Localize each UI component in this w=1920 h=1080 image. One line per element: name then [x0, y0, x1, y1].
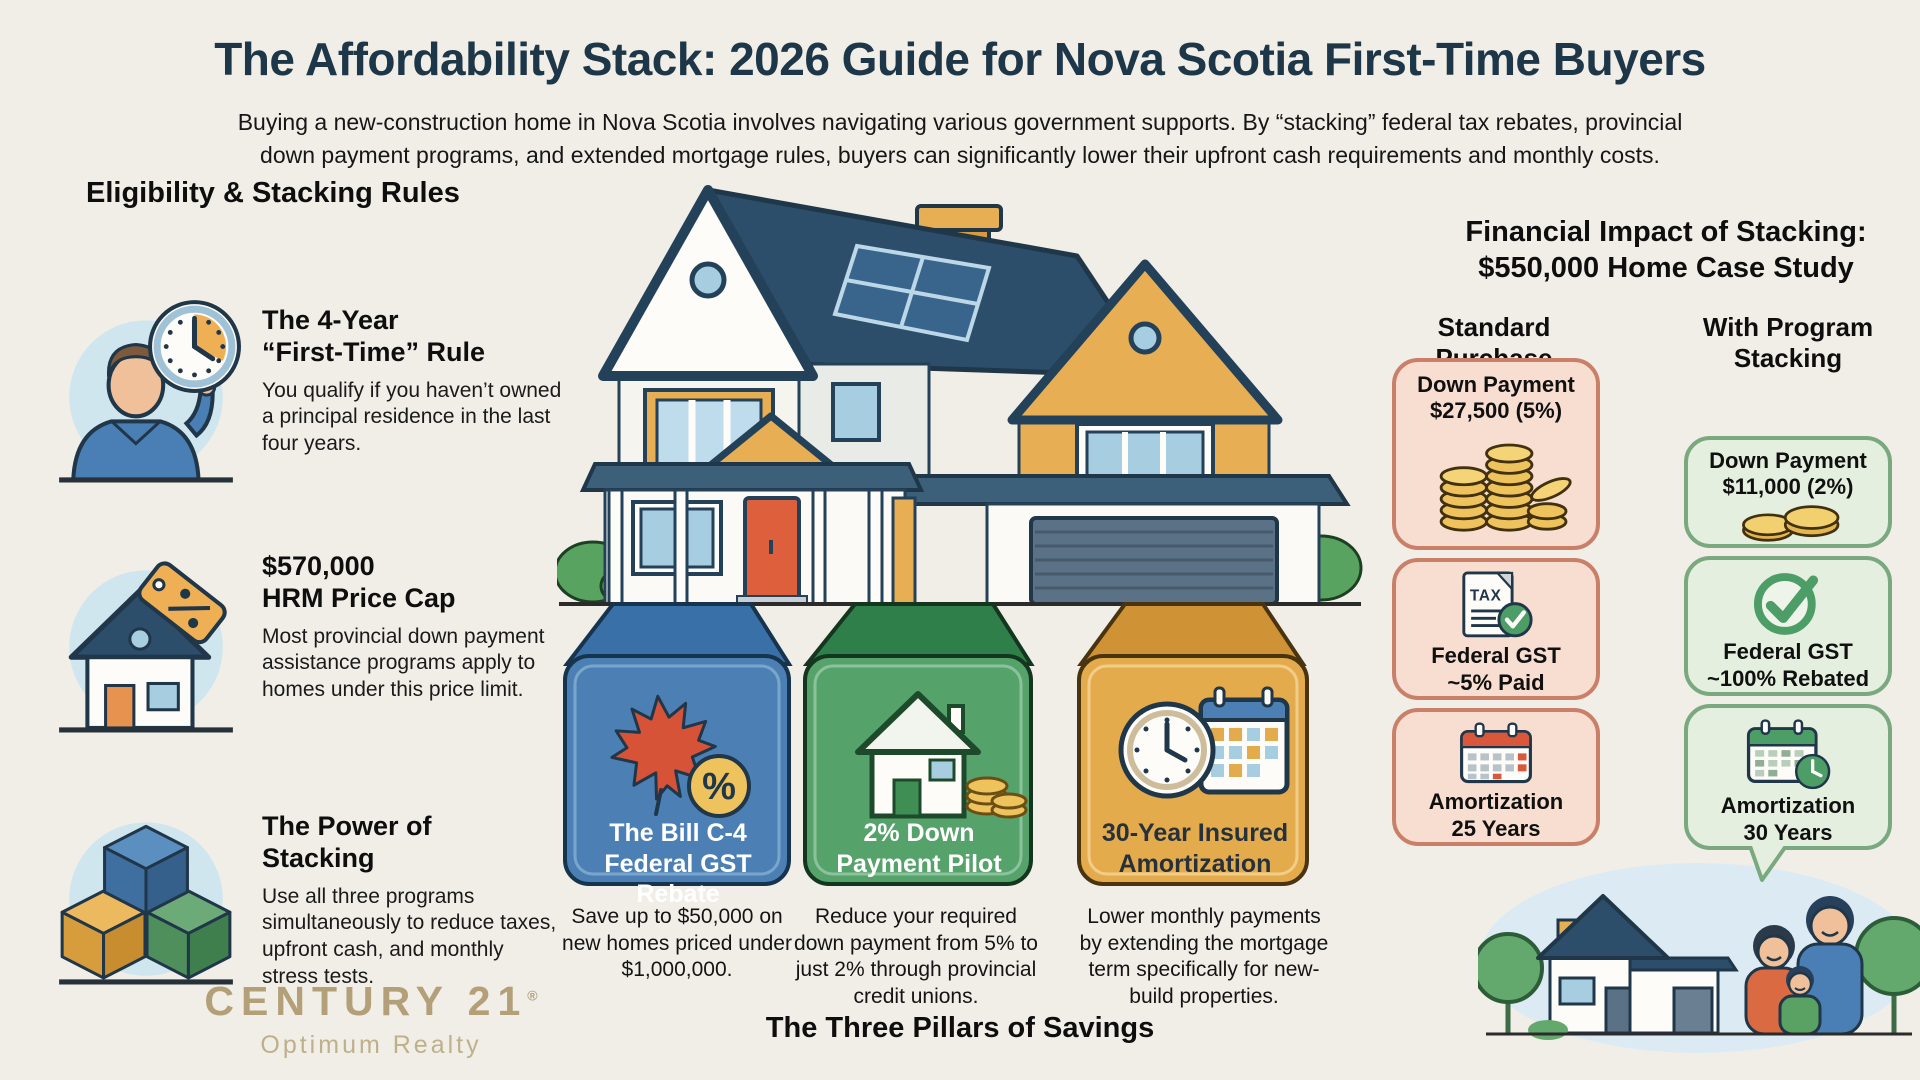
person-clock-icon [44, 290, 248, 484]
impact-heading: Financial Impact of Stacking: $550,000 H… [1412, 214, 1920, 287]
rule-item-price-cap: $570,000 HRM Price Cap Most provincial d… [262, 550, 564, 704]
speech-bubble-tail [1746, 846, 1790, 884]
calendar-clock-icon [1739, 714, 1837, 791]
calendar-red-icon [1452, 719, 1540, 786]
stacked-cubes-icon [44, 792, 248, 986]
coin-stacks-icon [1420, 427, 1572, 533]
card-stacking-down-payment: Down Payment $11,000 (2%) [1684, 436, 1892, 548]
card-label: Down Payment $11,000 (2%) [1709, 448, 1867, 501]
card-label: Amortization 30 Years [1721, 793, 1855, 846]
svg-text:TAX: TAX [1470, 588, 1502, 605]
page-title: The Affordability Stack: 2026 Guide for … [0, 32, 1920, 86]
tax-document-check-icon: TAX [1450, 570, 1542, 640]
century21-logo: CENTURY 21® Optimum Realty [196, 978, 546, 1060]
family-home-illustration [1478, 828, 1920, 1068]
card-label: Down Payment $27,500 (5%) [1417, 372, 1575, 425]
page-subtitle: Buying a new-construction home in Nova S… [0, 106, 1920, 171]
rule-item-first-time: The 4-Year “First-Time” Rule You qualify… [262, 304, 574, 458]
stacking-column-heading: With Program Stacking [1672, 312, 1904, 374]
tree-icon [1478, 934, 1542, 1002]
rule-title: The 4-Year “First-Time” Rule [262, 304, 574, 369]
house-illustration [557, 168, 1363, 610]
pillar-desc-amortization: Lower monthly payments by extending the … [1078, 904, 1330, 1011]
registered-mark: ® [527, 987, 537, 1003]
infographic-root: The Affordability Stack: 2026 Guide for … [0, 0, 1920, 1080]
rule-body: Use all three programs simultaneously to… [262, 884, 564, 991]
rule-title: $570,000 HRM Price Cap [262, 550, 564, 615]
pillar-label-gst: The Bill C-4 Federal GST Rebate [565, 818, 791, 910]
pillar-desc-down-payment: Reduce your required down payment from 5… [792, 904, 1040, 1011]
card-stacking-gst: Federal GST ~100% Rebated [1684, 556, 1892, 696]
card-label: Federal GST ~100% Rebated [1707, 639, 1869, 692]
card-label: Amortization 25 Years [1429, 789, 1563, 842]
rule-title: The Power of Stacking [262, 810, 564, 875]
porch-roof [583, 464, 921, 490]
pillars-caption: The Three Pillars of Savings [555, 1012, 1365, 1045]
pillar-label-down-payment: 2% Down Payment Pilot [806, 818, 1032, 879]
brand-name: CENTURY 21® [196, 978, 546, 1025]
check-circle-icon [1746, 566, 1830, 637]
house-price-tag-icon [44, 540, 248, 734]
eligibility-heading: Eligibility & Stacking Rules [86, 176, 460, 211]
rule-body: Most provincial down payment assistance … [262, 624, 564, 704]
rule-body: You qualify if you haven’t owned a princ… [262, 378, 574, 458]
card-standard-amortization: Amortization 25 Years [1392, 708, 1600, 846]
card-standard-gst: TAX Federal GST ~5% Paid [1392, 558, 1600, 700]
pillar-desc-gst: Save up to $50,000 on new homes priced u… [556, 904, 798, 984]
pillar-label-amortization: 30-Year Insured Amortization [1082, 818, 1308, 879]
two-coins-icon [1733, 503, 1843, 543]
rule-item-stacking-power: The Power of Stacking Use all three prog… [262, 810, 564, 990]
brand-subtitle: Optimum Realty [196, 1031, 546, 1060]
card-standard-down-payment: Down Payment $27,500 (5%) [1392, 358, 1600, 550]
svg-text:%: % [702, 766, 736, 808]
tree-icon [1856, 918, 1920, 994]
card-label: Federal GST ~5% Paid [1431, 643, 1561, 696]
card-stacking-amortization: Amortization 30 Years [1684, 704, 1892, 850]
